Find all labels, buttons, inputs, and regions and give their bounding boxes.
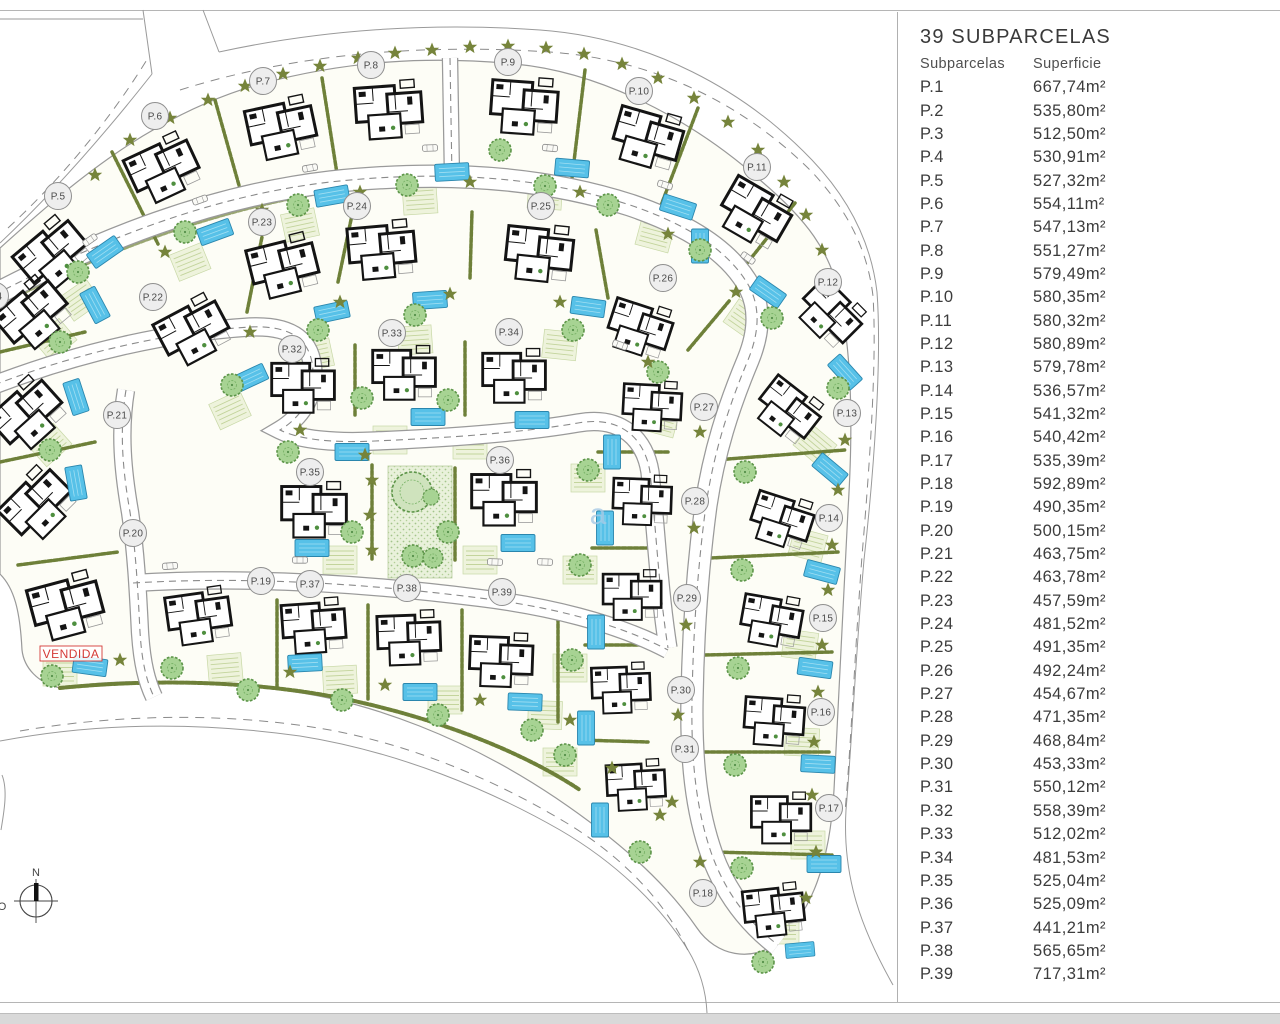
pool-icon bbox=[801, 755, 836, 774]
tree-icon bbox=[351, 387, 373, 409]
legend-row: P.26492,24m² bbox=[920, 660, 1278, 683]
pool-icon bbox=[785, 942, 815, 959]
parcel-id: P.7 bbox=[920, 218, 1033, 237]
parcel-area: 463,75m² bbox=[1033, 545, 1106, 564]
parcel-area: 580,32m² bbox=[1033, 312, 1106, 331]
parcel-bubble-label: P.9 bbox=[501, 58, 516, 69]
car-icon bbox=[487, 559, 502, 566]
parcel-area: 492,24m² bbox=[1033, 662, 1106, 681]
parcel-bubble-label: P.6 bbox=[148, 112, 163, 123]
shrub-star-icon bbox=[721, 115, 735, 129]
parcel-area: 536,57m² bbox=[1033, 382, 1106, 401]
parcel-area: 717,31m² bbox=[1033, 965, 1106, 984]
parcel-bubble: P.15 bbox=[810, 605, 837, 632]
tree-icon bbox=[423, 548, 443, 568]
legend-row: P.30453,33m² bbox=[920, 753, 1278, 776]
legend-row: P.18592,89m² bbox=[920, 473, 1278, 496]
parcel-id: P.34 bbox=[920, 849, 1033, 868]
tree-icon bbox=[731, 559, 753, 581]
parcel-area: 530,91m² bbox=[1033, 148, 1106, 167]
parcel-bubble-label: P.8 bbox=[364, 61, 379, 72]
parcel-bubble-label: P.24 bbox=[347, 202, 368, 213]
shrub-star-icon bbox=[777, 175, 791, 189]
parcel-bubble: P.9 bbox=[495, 49, 522, 76]
parcel-bubble-label: P.34 bbox=[499, 328, 520, 339]
tree-icon bbox=[629, 841, 651, 863]
pool-icon bbox=[508, 693, 543, 711]
compass-west-fragment: O bbox=[0, 901, 7, 913]
legend-row: P.37441,21m² bbox=[920, 916, 1278, 939]
parcel-bubble: P.22 bbox=[140, 284, 167, 311]
parcel-area: 554,11m² bbox=[1033, 195, 1105, 214]
parcel-bubble-label: P.39 bbox=[492, 588, 513, 599]
parcel-area: 468,84m² bbox=[1033, 732, 1106, 751]
column-header-superficie: Superficie bbox=[1033, 56, 1101, 72]
legend-row: P.14536,57m² bbox=[920, 379, 1278, 402]
parcel-id: P.38 bbox=[920, 942, 1033, 961]
legend-row: P.33512,02m² bbox=[920, 823, 1278, 846]
parcel-id: P.29 bbox=[920, 732, 1033, 751]
tree-icon bbox=[689, 239, 711, 261]
parcel-bubble-label: P.28 bbox=[685, 497, 706, 508]
parcel-id: P.18 bbox=[920, 475, 1033, 494]
parcel-bubble: P.8 bbox=[358, 52, 385, 79]
legend-row: P.16540,42m² bbox=[920, 426, 1278, 449]
tree-icon bbox=[724, 754, 746, 776]
tree-icon bbox=[287, 194, 309, 216]
tree-icon bbox=[727, 657, 749, 679]
tree-icon bbox=[277, 441, 299, 463]
tree-icon bbox=[734, 461, 756, 483]
parcel-bubble-label: P.11 bbox=[747, 163, 767, 174]
legend-row: P.11580,32m² bbox=[920, 309, 1278, 332]
tree-icon bbox=[597, 194, 619, 216]
parcel-area: 565,65m² bbox=[1033, 942, 1106, 961]
legend-row: P.9579,49m² bbox=[920, 263, 1278, 286]
legend-row: P.39717,31m² bbox=[920, 963, 1278, 986]
parcel-area: 540,42m² bbox=[1033, 428, 1106, 447]
parcel-bubble-label: P.18 bbox=[693, 889, 714, 900]
parcel-area: 527,32m² bbox=[1033, 172, 1106, 191]
parcel-bubble-label: P.32 bbox=[282, 345, 303, 356]
parcel-bubble: P.29 bbox=[674, 585, 701, 612]
tree-icon bbox=[174, 221, 196, 243]
tree-icon bbox=[761, 307, 783, 329]
parcel-bubble: P.30 bbox=[668, 677, 695, 704]
parcel-area: 481,52m² bbox=[1033, 615, 1106, 634]
tree-icon bbox=[437, 521, 459, 543]
parcel-bubble: P.7 bbox=[250, 68, 277, 95]
shrub-star-icon bbox=[687, 91, 701, 105]
parcel-area: 579,78m² bbox=[1033, 358, 1106, 377]
parcel-id: P.9 bbox=[920, 265, 1033, 284]
legend-row: P.23457,59m² bbox=[920, 590, 1278, 613]
tree-icon bbox=[237, 679, 259, 701]
legend-row: P.35525,04m² bbox=[920, 870, 1278, 893]
car-icon bbox=[422, 145, 437, 152]
parcel-area: 547,13m² bbox=[1033, 218, 1106, 237]
parcel-bubble: P.32 bbox=[279, 336, 306, 363]
parcel-area: 558,39m² bbox=[1033, 802, 1106, 821]
parcel-id: P.27 bbox=[920, 685, 1033, 704]
pool-icon bbox=[588, 615, 605, 649]
parcel-bubble: P.23 bbox=[249, 209, 276, 236]
pool-icon bbox=[592, 803, 609, 837]
parcel-bubble-label: P.16 bbox=[811, 708, 832, 719]
parcel-area: 580,89m² bbox=[1033, 335, 1106, 354]
parcel-bubble-label: P.30 bbox=[671, 686, 692, 697]
parcel-area: 512,50m² bbox=[1033, 125, 1106, 144]
tree-icon bbox=[827, 377, 849, 399]
legend-row: P.6554,11m² bbox=[920, 193, 1278, 216]
tree-icon bbox=[402, 545, 424, 567]
legend-title: 39 SUBPARCELAS bbox=[920, 26, 1278, 49]
legend-row: P.8551,27m² bbox=[920, 239, 1278, 262]
site-plan-page: VENDIDA a P.4P.5P.6P.7P.8P.9P.10P.11P.12… bbox=[0, 0, 1280, 1024]
watermark-letter: a bbox=[590, 498, 607, 531]
parcel-area: 525,04m² bbox=[1033, 872, 1106, 891]
tree-icon bbox=[396, 174, 418, 196]
tree-icon bbox=[752, 951, 774, 973]
parcel-bubble-label: P.7 bbox=[256, 77, 271, 88]
tree-icon bbox=[331, 689, 353, 711]
parcel-id: P.15 bbox=[920, 405, 1033, 424]
parcel-bubble-label: P.22 bbox=[143, 293, 164, 304]
parcel-bubble-label: P.14 bbox=[819, 514, 840, 525]
parcel-area: 457,59m² bbox=[1033, 592, 1106, 611]
parcel-bubble: P.27 bbox=[691, 394, 718, 421]
tree-icon bbox=[569, 554, 591, 576]
pool-icon bbox=[501, 535, 535, 552]
legend-row: P.4530,91m² bbox=[920, 146, 1278, 169]
parcel-bubble-label: P.29 bbox=[677, 594, 698, 605]
parcel-area: 471,35m² bbox=[1033, 708, 1106, 727]
legend-row: P.15541,32m² bbox=[920, 403, 1278, 426]
pool-icon bbox=[578, 711, 595, 745]
parcel-area: 667,74m² bbox=[1033, 78, 1106, 97]
legend-row: P.19490,35m² bbox=[920, 496, 1278, 519]
parcel-bubble: P.33 bbox=[379, 320, 406, 347]
shrub-star-icon bbox=[615, 57, 629, 71]
parcel-bubble-label: P.12 bbox=[818, 278, 839, 289]
parcel-id: P.5 bbox=[920, 172, 1033, 191]
parcel-id: P.32 bbox=[920, 802, 1033, 821]
pool-icon bbox=[411, 409, 445, 426]
parcel-bubble: P.20 bbox=[120, 520, 147, 547]
parcel-area: 441,21m² bbox=[1033, 919, 1106, 938]
legend-row: P.24481,52m² bbox=[920, 613, 1278, 636]
legend-row: P.5527,32m² bbox=[920, 169, 1278, 192]
legend-row: P.20500,15m² bbox=[920, 520, 1278, 543]
parcel-bubble-label: P.20 bbox=[123, 529, 144, 540]
parcel-area: 500,15m² bbox=[1033, 522, 1106, 541]
parcel-area: 454,67m² bbox=[1033, 685, 1106, 704]
parcel-area: 481,53m² bbox=[1033, 849, 1106, 868]
legend-row: P.1667,74m² bbox=[920, 76, 1278, 99]
sold-stamp: VENDIDA bbox=[40, 646, 102, 661]
parcel-bubble: P.18 bbox=[690, 880, 717, 907]
parcel-area: 550,12m² bbox=[1033, 778, 1106, 797]
pool-icon bbox=[288, 654, 323, 673]
shrub-star-icon bbox=[425, 43, 439, 57]
north-compass: N O bbox=[0, 867, 58, 923]
parcel-id: P.28 bbox=[920, 708, 1033, 727]
legend-rows: P.1667,74m²P.2535,80m²P.3512,50m²P.4530,… bbox=[920, 76, 1278, 986]
parcel-id: P.21 bbox=[920, 545, 1033, 564]
shrub-star-icon bbox=[651, 71, 665, 85]
parcel-bubble-label: P.10 bbox=[629, 87, 650, 98]
parcel-bubble: P.34 bbox=[496, 319, 523, 346]
parcel-id: P.16 bbox=[920, 428, 1033, 447]
parcel-id: P.17 bbox=[920, 452, 1033, 471]
parcel-id: P.10 bbox=[920, 288, 1033, 307]
parcel-bubble: P.31 bbox=[672, 736, 699, 763]
parcel-id: P.33 bbox=[920, 825, 1033, 844]
parcel-id: P.26 bbox=[920, 662, 1033, 681]
parcel-bubble: P.11 bbox=[744, 154, 771, 181]
pool-icon bbox=[604, 435, 621, 469]
parcel-area: 535,39m² bbox=[1033, 452, 1106, 471]
legend-row: P.17535,39m² bbox=[920, 450, 1278, 473]
parcel-area: 551,27m² bbox=[1033, 242, 1106, 261]
tree-icon bbox=[731, 857, 753, 879]
legend-row: P.31550,12m² bbox=[920, 776, 1278, 799]
parcel-bubble-label: P.17 bbox=[819, 804, 840, 815]
tree-icon bbox=[67, 261, 89, 283]
parcel-area: 453,33m² bbox=[1033, 755, 1106, 774]
legend-row: P.13579,78m² bbox=[920, 356, 1278, 379]
parcel-id: P.11 bbox=[920, 312, 1033, 331]
parcel-bubble: P.17 bbox=[816, 795, 843, 822]
tree-icon bbox=[554, 744, 576, 766]
parcel-bubble: P.14 bbox=[816, 505, 843, 532]
parcel-bubble: P.12 bbox=[815, 269, 842, 296]
parcel-id: P.35 bbox=[920, 872, 1033, 891]
parcel-id: P.25 bbox=[920, 638, 1033, 657]
pool-icon bbox=[515, 412, 549, 429]
parcel-id: P.1 bbox=[920, 78, 1033, 97]
pool-icon bbox=[295, 540, 329, 557]
parcel-id: P.3 bbox=[920, 125, 1033, 144]
legend-row: P.32558,39m² bbox=[920, 800, 1278, 823]
compass-north-label: N bbox=[32, 867, 40, 879]
legend-row: P.3512,50m² bbox=[920, 123, 1278, 146]
legend-row: P.22463,78m² bbox=[920, 566, 1278, 589]
parcel-bubble-label: P.31 bbox=[675, 745, 696, 756]
parcel-area: 490,35m² bbox=[1033, 498, 1106, 517]
pool-icon bbox=[807, 856, 841, 873]
parcel-bubble-label: P.36 bbox=[490, 456, 511, 467]
pool-icon bbox=[403, 684, 437, 701]
parcel-id: P.6 bbox=[920, 195, 1033, 214]
parcel-bubble-label: P.19 bbox=[251, 577, 272, 588]
parcel-bubble: P.6 bbox=[142, 103, 169, 130]
parcel-area: 580,35m² bbox=[1033, 288, 1106, 307]
tree-icon bbox=[161, 657, 183, 679]
parcel-bubble-label: P.37 bbox=[300, 580, 321, 591]
parcel-area: 463,78m² bbox=[1033, 568, 1106, 587]
legend-row: P.28471,35m² bbox=[920, 706, 1278, 729]
tree-icon bbox=[221, 374, 243, 396]
tree-icon bbox=[404, 304, 426, 326]
parcel-id: P.37 bbox=[920, 919, 1033, 938]
parcel-id: P.8 bbox=[920, 242, 1033, 261]
parcel-bubble-label: P.25 bbox=[531, 202, 552, 213]
parcel-bubble-label: P.38 bbox=[397, 584, 418, 595]
parcel-id: P.2 bbox=[920, 102, 1033, 121]
legend-row: P.2535,80m² bbox=[920, 99, 1278, 122]
parcel-area: 512,02m² bbox=[1033, 825, 1106, 844]
tree-icon bbox=[577, 459, 599, 481]
parcel-bubble-label: P.33 bbox=[382, 329, 403, 340]
legend-row: P.36525,09m² bbox=[920, 893, 1278, 916]
parcel-bubble-label: P.5 bbox=[51, 192, 66, 203]
parcel-id: P.22 bbox=[920, 568, 1033, 587]
legend-row: P.7547,13m² bbox=[920, 216, 1278, 239]
subparcel-legend-panel: 39 SUBPARCELAS Subparcelas Superficie P.… bbox=[898, 10, 1278, 1002]
car-icon bbox=[537, 559, 552, 566]
tree-icon bbox=[39, 439, 61, 461]
parcel-id: P.23 bbox=[920, 592, 1033, 611]
legend-row: P.29468,84m² bbox=[920, 730, 1278, 753]
legend-row: P.21463,75m² bbox=[920, 543, 1278, 566]
parcel-area: 535,80m² bbox=[1033, 102, 1106, 121]
parcel-bubble-label: P.26 bbox=[653, 274, 674, 285]
parcel-bubble-label: P.23 bbox=[252, 218, 273, 229]
tree-icon bbox=[341, 521, 363, 543]
parcel-bubble: P.21 bbox=[104, 402, 131, 429]
parcel-bubble-label: P.35 bbox=[300, 468, 321, 479]
parcel-bubble: P.24 bbox=[344, 193, 371, 220]
parcel-id: P.4 bbox=[920, 148, 1033, 167]
parcel-area: 592,89m² bbox=[1033, 475, 1106, 494]
parcel-bubble: P.13 bbox=[834, 400, 861, 427]
shrub-star-icon bbox=[577, 47, 591, 61]
parcel-id: P.31 bbox=[920, 778, 1033, 797]
legend-row: P.10580,35m² bbox=[920, 286, 1278, 309]
parcel-bubble: P.28 bbox=[682, 488, 709, 515]
parcel-bubble: P.5 bbox=[45, 183, 72, 210]
parcel-bubble: P.39 bbox=[489, 579, 516, 606]
parcel-id: P.12 bbox=[920, 335, 1033, 354]
parcel-bubble: P.16 bbox=[808, 699, 835, 726]
legend-row: P.25491,35m² bbox=[920, 636, 1278, 659]
parcel-bubble: P.38 bbox=[394, 575, 421, 602]
legend-row: P.34481,53m² bbox=[920, 846, 1278, 869]
parcel-id: P.20 bbox=[920, 522, 1033, 541]
tree-icon bbox=[521, 719, 543, 741]
tree-icon bbox=[41, 665, 63, 687]
pool-icon bbox=[435, 163, 470, 182]
parcel-bubble-label: P.15 bbox=[813, 614, 834, 625]
parcel-id: P.36 bbox=[920, 895, 1033, 914]
parcel-id: P.39 bbox=[920, 965, 1033, 984]
parcel-bubble: P.37 bbox=[297, 571, 324, 598]
tree-icon bbox=[489, 139, 511, 161]
shrub-star-icon bbox=[463, 40, 477, 54]
legend-row: P.27454,67m² bbox=[920, 683, 1278, 706]
site-plan-drawing: VENDIDA a P.4P.5P.6P.7P.8P.9P.10P.11P.12… bbox=[0, 0, 897, 1024]
tree-icon bbox=[307, 319, 329, 341]
parcel-id: P.14 bbox=[920, 382, 1033, 401]
parcel-id: P.30 bbox=[920, 755, 1033, 774]
parcel-bubble-label: P.4 bbox=[0, 292, 2, 303]
car-icon bbox=[162, 562, 177, 569]
shrub-star-icon bbox=[388, 46, 402, 60]
sold-label: VENDIDA bbox=[43, 647, 100, 661]
car-icon bbox=[293, 557, 308, 563]
column-header-subparcelas: Subparcelas bbox=[920, 56, 1033, 72]
parcel-bubble: P.36 bbox=[487, 447, 514, 474]
parcel-id: P.19 bbox=[920, 498, 1033, 517]
legend-row: P.38565,65m² bbox=[920, 940, 1278, 963]
legend-column-headers: Subparcelas Superficie bbox=[920, 56, 1278, 72]
parcel-bubble-label: P.13 bbox=[837, 409, 858, 420]
parcel-bubble: P.10 bbox=[626, 78, 653, 105]
parcel-area: 541,32m² bbox=[1033, 405, 1106, 424]
car-icon bbox=[542, 144, 558, 152]
parcel-area: 525,09m² bbox=[1033, 895, 1106, 914]
pool-icon bbox=[554, 158, 589, 178]
parcel-bubble-label: P.27 bbox=[694, 403, 715, 414]
tree-icon bbox=[561, 649, 583, 671]
tree-icon bbox=[437, 389, 459, 411]
parcel-area: 579,49m² bbox=[1033, 265, 1106, 284]
garden-patch bbox=[207, 653, 243, 684]
parcel-bubble: P.26 bbox=[650, 265, 677, 292]
parcel-id: P.24 bbox=[920, 615, 1033, 634]
parcel-bubble-label: P.21 bbox=[107, 411, 128, 422]
legend-row: P.12580,89m² bbox=[920, 333, 1278, 356]
parcel-bubble: P.19 bbox=[248, 568, 275, 595]
parcel-id: P.13 bbox=[920, 358, 1033, 377]
tree-icon bbox=[49, 331, 71, 353]
parcel-bubble: P.35 bbox=[297, 459, 324, 486]
parcel-bubble: P.25 bbox=[528, 193, 555, 220]
parcel-area: 491,35m² bbox=[1033, 638, 1106, 657]
tree-icon bbox=[562, 319, 584, 341]
tree-icon bbox=[427, 704, 449, 726]
